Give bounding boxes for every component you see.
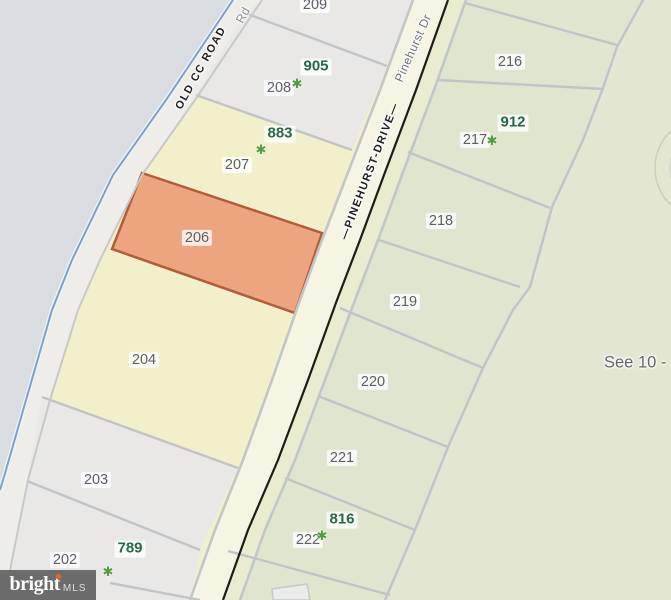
parcel-label-204[interactable]: 204 <box>129 352 159 368</box>
parcel-label-207[interactable]: 207 <box>222 157 252 173</box>
brightmls-accent-icon <box>55 572 62 579</box>
tree-icon[interactable]: ✱ <box>317 528 328 544</box>
parcel-label-203[interactable]: 203 <box>81 472 111 488</box>
tree-icon[interactable]: ✱ <box>256 142 267 158</box>
parcel-label-219[interactable]: 219 <box>390 294 420 310</box>
parcel-label-209[interactable]: 209 <box>300 0 330 13</box>
brightmls-wordmark: bright <box>10 573 60 596</box>
parcel-label-218[interactable]: 218 <box>426 213 456 229</box>
tree-icon[interactable]: ✱ <box>487 133 498 149</box>
listing-label-883[interactable]: 883 <box>264 126 295 143</box>
listing-label-816[interactable]: 816 <box>326 512 357 529</box>
listing-label-905[interactable]: 905 <box>300 59 331 76</box>
parcel-label-221[interactable]: 221 <box>327 450 357 466</box>
parcel-label-216[interactable]: 216 <box>495 54 525 70</box>
brightmls-logo: bright MLS <box>0 570 96 600</box>
parcel-label-208[interactable]: 208 <box>264 80 294 96</box>
tree-icon[interactable]: ✱ <box>292 76 303 92</box>
parcel-label-202[interactable]: 202 <box>50 552 80 568</box>
tree-icon[interactable]: ✱ <box>103 564 114 580</box>
parcel-map[interactable]: 209 208 207 206 204 203 202 216 217 218 … <box>0 0 671 600</box>
listing-label-912[interactable]: 912 <box>497 115 528 132</box>
see-note: See 10 - <box>604 354 666 373</box>
brightmls-suffix: MLS <box>63 583 87 594</box>
listing-label-789[interactable]: 789 <box>114 541 145 558</box>
parcel-label-206[interactable]: 206 <box>182 230 212 246</box>
parcel-label-220[interactable]: 220 <box>358 374 388 390</box>
